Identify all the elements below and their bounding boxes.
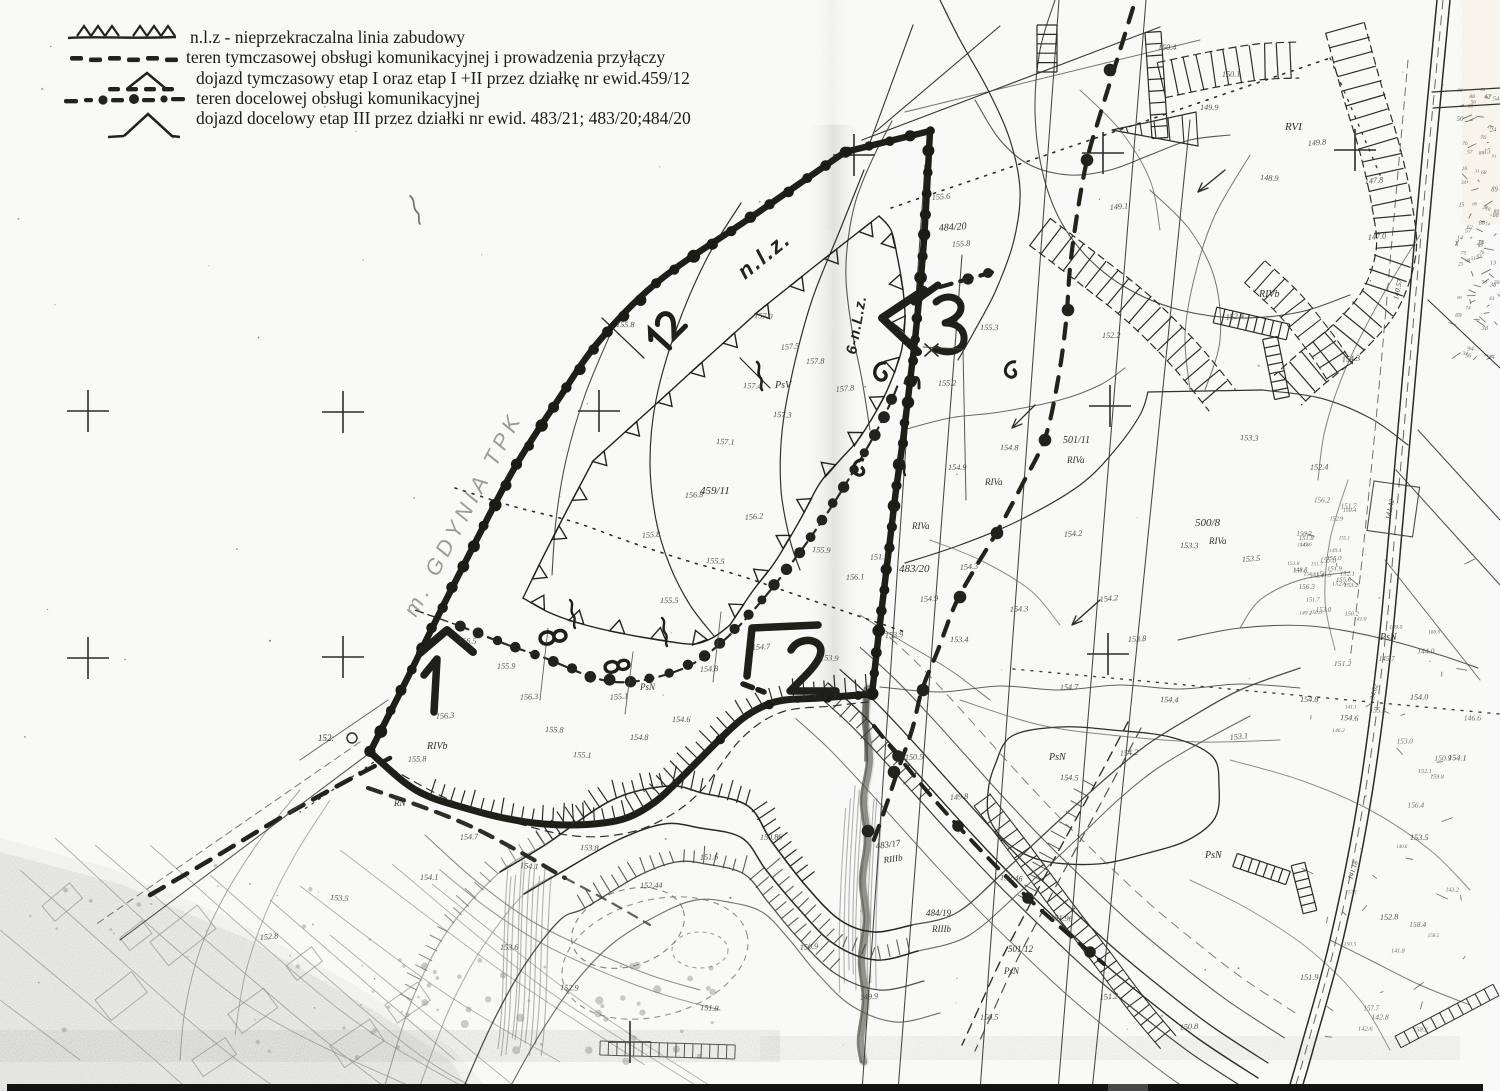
svg-text:dojazd docelowy etap III prze: dojazd docelowy etap III przez działki n… (196, 108, 691, 128)
svg-text:501/11: 501/11 (1063, 435, 1090, 446)
svg-text:43: 43 (1489, 295, 1495, 302)
svg-text:158.4: 158.4 (1409, 920, 1426, 929)
svg-text:152.44: 152.44 (640, 881, 663, 890)
svg-text:151.2: 151.2 (1099, 991, 1118, 1002)
svg-text:74: 74 (1485, 222, 1490, 227)
svg-text:156.3: 156.3 (1299, 582, 1316, 591)
svg-text:501/12: 501/12 (1008, 944, 1034, 954)
svg-text:484/19: 484/19 (926, 908, 952, 918)
svg-text:55: 55 (1481, 87, 1486, 92)
svg-text:RIIIb: RIIIb (931, 924, 951, 934)
svg-text:154.3: 154.3 (959, 562, 978, 572)
svg-text:157.3: 157.3 (773, 410, 792, 420)
svg-text:91: 91 (1492, 153, 1497, 158)
svg-text:153.5: 153.5 (330, 893, 349, 903)
svg-text:RIVa: RIVa (911, 521, 930, 531)
svg-text:155.3: 155.3 (980, 323, 998, 332)
svg-text:146.2: 146.2 (1332, 728, 1345, 734)
svg-text:154.6: 154.6 (1340, 713, 1360, 723)
svg-text:141.0: 141.0 (1354, 617, 1367, 623)
svg-text:149.6: 149.6 (1300, 541, 1312, 548)
svg-text:PsN: PsN (1048, 752, 1067, 763)
svg-text:151.7: 151.7 (1341, 502, 1357, 510)
svg-text:154.3: 154.3 (1010, 604, 1029, 614)
svg-text:150.86: 150.86 (760, 832, 784, 842)
svg-text:152.6: 152.6 (1332, 581, 1348, 588)
svg-text:33: 33 (1475, 169, 1480, 174)
svg-text:155.9: 155.9 (812, 545, 831, 555)
svg-text:154.8: 154.8 (700, 664, 719, 674)
svg-text:13: 13 (1490, 260, 1497, 267)
svg-text:89: 89 (1472, 202, 1477, 207)
svg-text:152.9: 152.9 (560, 983, 579, 993)
svg-text:88: 88 (1468, 103, 1474, 109)
svg-text:153.1: 153.1 (1229, 731, 1248, 742)
svg-text:151.96: 151.96 (1050, 913, 1074, 924)
svg-text:152:: 152: (318, 733, 335, 743)
svg-text:n.l.z - nieprzekraczalna lini: n.l.z - nieprzekraczalna linia zabudowy (190, 27, 465, 47)
svg-text:76: 76 (1481, 135, 1487, 141)
svg-text:149.9: 149.9 (1200, 103, 1218, 112)
svg-text:54: 54 (1493, 95, 1500, 102)
svg-text:RVI: RVI (1284, 121, 1303, 133)
svg-text:PsN: PsN (639, 682, 656, 692)
svg-text:157.5: 157.5 (780, 341, 799, 352)
svg-text:459/11: 459/11 (700, 485, 730, 497)
svg-text:155.9: 155.9 (497, 662, 516, 671)
svg-text:41: 41 (1487, 125, 1492, 130)
svg-text:151.9: 151.9 (1300, 973, 1319, 982)
svg-text:RIVb: RIVb (1258, 289, 1280, 300)
svg-text:154.5: 154.5 (1060, 773, 1079, 782)
svg-text:157.8: 157.8 (835, 383, 854, 394)
svg-text:156.3: 156.3 (436, 711, 455, 721)
svg-text:150.9: 150.9 (800, 942, 819, 952)
svg-text:88: 88 (1469, 94, 1475, 100)
svg-text:154.8: 154.8 (1300, 695, 1318, 704)
svg-text:PsN: PsN (1003, 966, 1020, 976)
svg-text:80: 80 (1457, 295, 1462, 300)
svg-text:140.6: 140.6 (1396, 845, 1408, 850)
svg-text:dojazd tymczasowy etap I or: dojazd tymczasowy etap I oraz etap I +II… (196, 68, 690, 88)
svg-text:145.7: 145.7 (1379, 655, 1395, 663)
svg-text:155.8: 155.8 (545, 725, 564, 735)
svg-text:155.8: 155.8 (641, 530, 660, 540)
svg-text:155.8: 155.8 (408, 754, 427, 764)
svg-text:157.8: 157.8 (806, 357, 825, 366)
svg-text:149.0: 149.0 (1389, 624, 1402, 631)
svg-text:152.8: 152.8 (259, 931, 278, 942)
svg-text:157.7: 157.7 (1364, 1005, 1380, 1012)
svg-text:154.2: 154.2 (1064, 529, 1083, 539)
svg-text:154.7: 154.7 (460, 832, 480, 842)
svg-text:156.5: 156.5 (1316, 571, 1332, 579)
svg-text:78: 78 (1494, 280, 1500, 286)
svg-text:154.6: 154.6 (672, 715, 691, 724)
svg-text:142.8: 142.8 (1371, 1012, 1388, 1021)
svg-text:RIVa: RIVa (1208, 536, 1227, 546)
svg-text:16: 16 (1462, 166, 1468, 172)
svg-text:156.4: 156.4 (1408, 801, 1425, 810)
svg-text:146.6: 146.6 (1464, 714, 1481, 723)
svg-text:151.7: 151.7 (870, 552, 890, 562)
svg-text:153.5: 153.5 (1242, 554, 1261, 564)
svg-text:152.1: 152.1 (1340, 570, 1355, 577)
svg-text:154.8: 154.8 (1000, 443, 1019, 452)
svg-text:152.8: 152.8 (1380, 912, 1399, 922)
svg-text:34: 34 (1461, 181, 1466, 186)
svg-text:143.2: 143.2 (1446, 888, 1459, 894)
svg-text:68: 68 (1481, 170, 1487, 176)
svg-text:151.7: 151.7 (1306, 598, 1321, 604)
svg-text:158.2: 158.2 (1413, 1027, 1428, 1034)
svg-text:153.5: 153.5 (1410, 833, 1428, 842)
svg-text:153.3: 153.3 (1240, 433, 1259, 443)
svg-text:155.5: 155.5 (706, 556, 725, 566)
svg-text:89: 89 (1491, 187, 1498, 194)
svg-text:62: 62 (1467, 225, 1473, 231)
svg-text:153.8: 153.8 (580, 843, 599, 853)
svg-text:149.8: 149.8 (1307, 137, 1326, 148)
svg-text:150.5: 150.5 (905, 752, 924, 762)
svg-text:154.2: 154.2 (1120, 748, 1139, 758)
svg-text:154.9: 154.9 (919, 594, 938, 604)
svg-text:teren docelowej obsługi komun: teren docelowej obsługi komunikacyjnej (196, 88, 480, 108)
svg-text:14: 14 (1457, 235, 1464, 242)
svg-text:155.0: 155.0 (1327, 555, 1343, 562)
svg-text:PsN: PsN (1379, 632, 1398, 643)
svg-text:152.4: 152.4 (1225, 311, 1244, 322)
svg-text:153.4: 153.4 (950, 635, 969, 644)
svg-text:RIVa: RIVa (984, 477, 1003, 487)
svg-text:144.0: 144.0 (1417, 647, 1434, 656)
svg-text:154.2: 154.2 (1099, 593, 1118, 604)
svg-text:76: 76 (1478, 240, 1484, 246)
svg-text:PsN: PsN (1204, 850, 1223, 861)
svg-text:147.0: 147.0 (1367, 231, 1386, 242)
svg-text:155.6: 155.6 (931, 191, 951, 202)
svg-text:23: 23 (1458, 262, 1463, 267)
svg-text:155.1: 155.1 (1339, 536, 1350, 541)
svg-text:RIVb: RIVb (426, 741, 448, 752)
svg-text:75: 75 (1461, 250, 1467, 256)
svg-text:150.4: 150.4 (1158, 43, 1176, 52)
svg-text:154.3: 154.3 (1341, 354, 1360, 364)
svg-text:76: 76 (1462, 141, 1468, 147)
svg-text:157.0: 157.0 (754, 311, 773, 321)
svg-text:153.0: 153.0 (1316, 607, 1332, 614)
svg-text:150.2: 150.2 (1345, 610, 1359, 617)
svg-text:154.7: 154.7 (752, 642, 772, 652)
svg-text:RN: RN (393, 798, 406, 808)
svg-text:151.8: 151.8 (1287, 561, 1299, 567)
svg-text:155.8: 155.8 (952, 239, 971, 249)
svg-text:142.6: 142.6 (1358, 1026, 1374, 1033)
svg-text:152.1: 152.1 (1418, 768, 1432, 775)
svg-text:151.8: 151.8 (700, 1003, 719, 1013)
svg-text:149.1: 149.1 (1109, 201, 1128, 212)
svg-text:153.6: 153.6 (500, 943, 519, 952)
svg-text:500/8: 500/8 (1195, 517, 1221, 529)
svg-text:153.3: 153.3 (1180, 541, 1198, 550)
svg-text:158.5: 158.5 (1428, 933, 1440, 939)
svg-text:151.2: 151.2 (1334, 659, 1352, 668)
svg-text:152.46: 152.46 (1000, 873, 1024, 883)
svg-text:150.5: 150.5 (1344, 942, 1357, 948)
svg-text:155.5: 155.5 (660, 596, 678, 605)
svg-text:154.1: 154.1 (420, 873, 439, 882)
svg-text:57: 57 (1467, 150, 1473, 156)
svg-text:154.0: 154.0 (1410, 692, 1429, 702)
svg-text:42: 42 (1484, 93, 1491, 100)
svg-text:154.3: 154.3 (1304, 570, 1316, 577)
svg-text:141.1: 141.1 (1345, 705, 1357, 711)
svg-text:153.9: 153.9 (820, 653, 839, 663)
svg-text:153.0: 153.0 (1397, 738, 1414, 746)
svg-text:149.9: 149.9 (859, 992, 878, 1002)
svg-text:151.6: 151.6 (700, 852, 720, 862)
svg-text:152.9: 152.9 (1330, 516, 1344, 522)
svg-text:155.8: 155.8 (616, 320, 634, 329)
svg-text:152.2: 152.2 (1102, 331, 1120, 340)
svg-text:149.8: 149.8 (950, 792, 969, 802)
svg-text:156.8: 156.8 (685, 490, 704, 500)
svg-text:153.9: 153.9 (885, 630, 904, 640)
svg-text:160.0: 160.0 (1428, 629, 1440, 635)
svg-text:56: 56 (1465, 353, 1471, 359)
svg-text:154.9: 154.9 (948, 463, 966, 472)
svg-text:150.9: 150.9 (1435, 754, 1452, 763)
svg-text:483/20: 483/20 (899, 563, 930, 575)
svg-text:94: 94 (1467, 346, 1474, 353)
svg-text:154.1: 154.1 (520, 861, 539, 871)
svg-text:157.4: 157.4 (743, 381, 762, 391)
svg-text:88: 88 (1493, 213, 1499, 219)
svg-text:152.4: 152.4 (1310, 463, 1329, 472)
svg-text:141.8: 141.8 (1391, 947, 1405, 954)
svg-text:69: 69 (1455, 312, 1462, 319)
svg-text:50: 50 (1457, 116, 1464, 123)
svg-text:156.1: 156.1 (846, 572, 865, 582)
svg-text:150.1: 150.1 (1222, 69, 1241, 79)
svg-text:156.3: 156.3 (520, 692, 539, 702)
svg-text:155.2: 155.2 (938, 378, 957, 388)
svg-text:150.8: 150.8 (1179, 1022, 1198, 1032)
svg-text:154.7: 154.7 (1060, 682, 1080, 692)
svg-text:154.4: 154.4 (1160, 695, 1179, 705)
svg-text:RIVa: RIVa (1066, 455, 1085, 465)
svg-text:74: 74 (1466, 306, 1471, 311)
svg-text:157.1: 157.1 (716, 437, 735, 447)
svg-text:15: 15 (1459, 203, 1465, 209)
svg-text:155.1: 155.1 (573, 750, 592, 760)
svg-text:156.2: 156.2 (744, 511, 763, 522)
svg-text:PsV: PsV (774, 380, 793, 391)
svg-text:154.8: 154.8 (630, 733, 648, 742)
svg-text:157.1: 157.1 (1345, 890, 1357, 896)
svg-text:30: 30 (1457, 89, 1463, 94)
svg-text:150.5: 150.5 (980, 1013, 999, 1022)
svg-text:teren tymczasowej obsługi kom: teren tymczasowej obsługi komunikacyjnej… (186, 47, 665, 67)
svg-text:147.8: 147.8 (1364, 175, 1383, 186)
svg-text:484/20: 484/20 (938, 221, 966, 234)
svg-text:155.1: 155.1 (609, 691, 628, 702)
svg-text:156.5: 156.5 (458, 636, 477, 646)
svg-text:153.8: 153.8 (1128, 634, 1147, 644)
svg-text:28: 28 (1483, 206, 1488, 211)
svg-text:149.4: 149.4 (1329, 547, 1342, 554)
svg-text:15: 15 (1484, 148, 1491, 155)
svg-text:156.2: 156.2 (1314, 496, 1330, 504)
svg-text:51: 51 (1471, 256, 1477, 262)
svg-text:148.9: 148.9 (1260, 173, 1279, 183)
svg-text:38: 38 (1481, 326, 1488, 332)
